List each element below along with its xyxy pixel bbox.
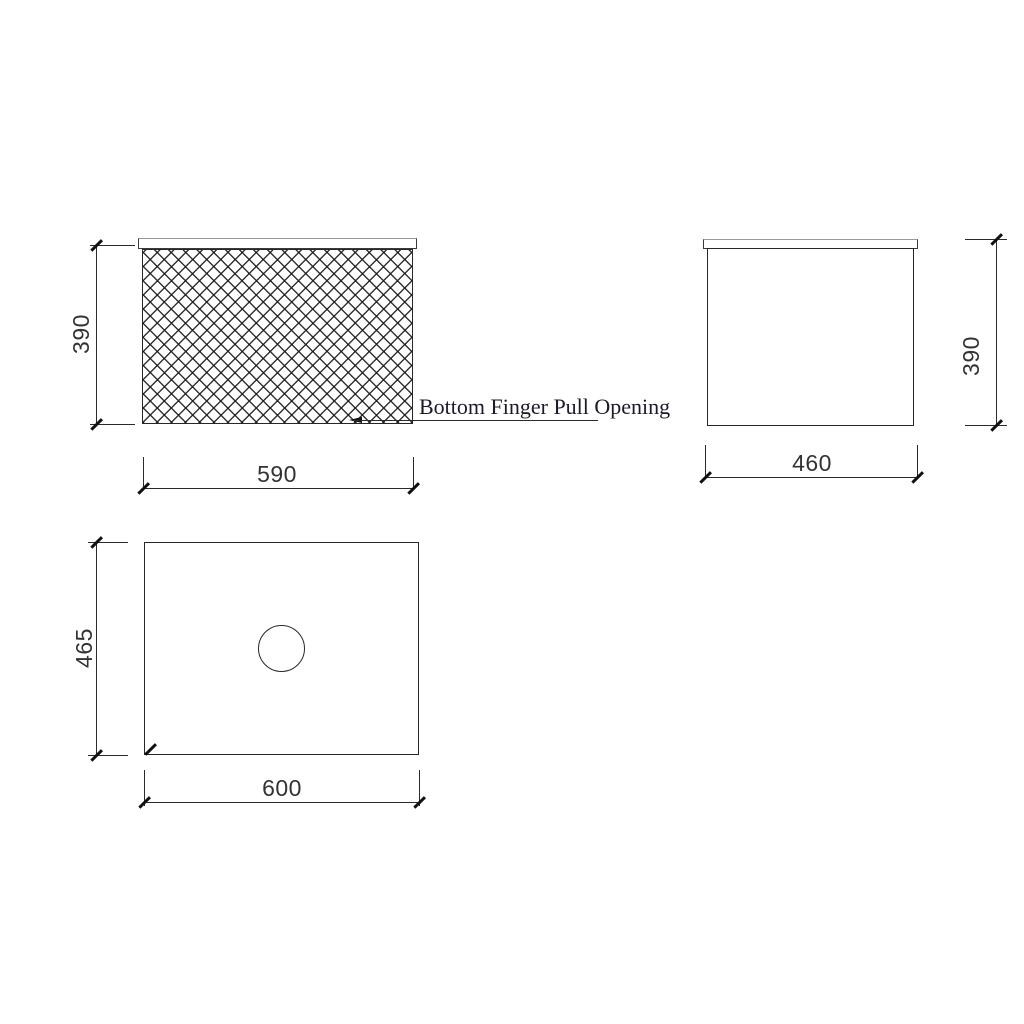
tap-hole-circle [258, 625, 305, 672]
dimension-line [996, 239, 997, 425]
front-cabinet-panel-hatched [142, 249, 413, 424]
front-height-dimension: 390 [71, 294, 91, 374]
dimension-line [143, 488, 413, 489]
extension-line [965, 425, 1007, 426]
front-countertop-strip [138, 238, 417, 249]
side-cabinet-panel [707, 248, 914, 426]
dimension-line [144, 802, 419, 803]
side-width-dimension: 460 [772, 453, 852, 473]
dimension-line [96, 245, 97, 424]
dimension-line [705, 477, 917, 478]
side-height-dimension: 390 [961, 316, 981, 396]
finger-pull-callout-label: Bottom Finger Pull Opening [419, 394, 670, 420]
extension-line [965, 239, 1007, 240]
callout-leader-line [352, 420, 598, 421]
front-width-dimension: 590 [237, 464, 317, 484]
drawing-canvas: 390 590 Bottom Finger Pull Opening 390 4… [0, 0, 1024, 1024]
top-height-dimension: 465 [74, 608, 94, 688]
top-width-dimension: 600 [242, 778, 322, 798]
